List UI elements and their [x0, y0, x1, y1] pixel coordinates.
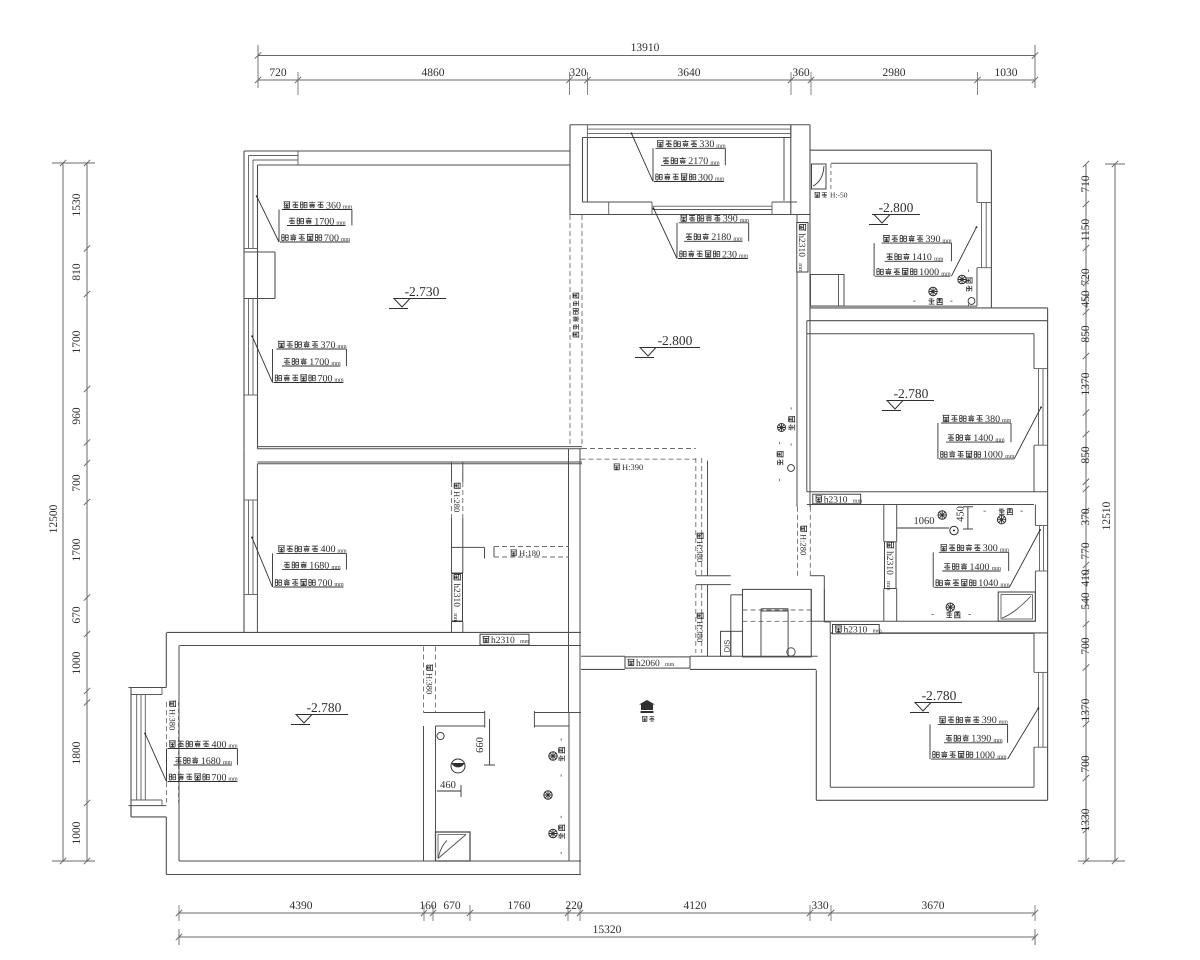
svg-text:h2310: h2310: [451, 583, 461, 607]
svg-text:360: 360: [792, 67, 810, 79]
svg-text:1760: 1760: [508, 900, 531, 912]
svg-text:770: 770: [1080, 542, 1092, 560]
svg-text:h2310: h2310: [796, 233, 806, 257]
svg-text:H:390: H:390: [622, 462, 643, 472]
svg-text:460: 460: [440, 780, 456, 791]
svg-text:1000: 1000: [71, 821, 83, 844]
svg-text:810: 810: [71, 263, 83, 281]
svg-text:960: 960: [71, 407, 83, 425]
svg-text:-: -: [931, 610, 934, 620]
svg-text:4120: 4120: [684, 900, 707, 912]
svg-text:-: -: [776, 479, 786, 482]
svg-text:H:380: H:380: [695, 621, 705, 642]
svg-text:670: 670: [71, 606, 83, 624]
svg-text:mm: mm: [797, 263, 803, 273]
svg-text:720: 720: [269, 67, 287, 79]
svg-text:3670: 3670: [922, 900, 945, 912]
svg-text:-: -: [950, 297, 953, 307]
svg-text:13910: 13910: [631, 42, 660, 54]
svg-text:450: 450: [1080, 290, 1092, 308]
svg-text:-: -: [983, 507, 986, 517]
svg-text:-: -: [965, 269, 975, 272]
svg-text:h2060: h2060: [636, 659, 660, 669]
svg-text:540: 540: [1080, 592, 1092, 610]
svg-text:1330: 1330: [1080, 808, 1092, 831]
svg-text:H:-50: H:-50: [830, 191, 848, 200]
svg-text:h2310: h2310: [844, 626, 868, 636]
svg-text:H:380: H:380: [695, 541, 705, 562]
svg-text:12510: 12510: [1101, 501, 1113, 530]
svg-text:4390: 4390: [290, 900, 313, 912]
svg-text:1530: 1530: [71, 193, 83, 216]
svg-text:-: -: [787, 443, 797, 446]
svg-text:1060: 1060: [914, 516, 935, 527]
svg-text:-2.730: -2.730: [405, 284, 440, 299]
svg-text:220: 220: [565, 900, 583, 912]
svg-text:DIS: DIS: [723, 640, 732, 653]
svg-text:h2310: h2310: [491, 636, 515, 646]
svg-text:160: 160: [419, 900, 437, 912]
svg-text:mm: mm: [853, 498, 863, 504]
svg-text:mm: mm: [665, 662, 675, 668]
svg-text:-2.780: -2.780: [307, 700, 342, 715]
svg-text:850: 850: [1080, 446, 1092, 464]
svg-text:410: 410: [1080, 569, 1092, 587]
svg-text:700: 700: [1080, 637, 1092, 655]
svg-text:-: -: [557, 738, 567, 741]
svg-text:12500: 12500: [48, 504, 60, 533]
svg-text:-: -: [776, 442, 786, 445]
svg-text:mm: mm: [873, 629, 883, 635]
svg-text:720: 720: [1080, 268, 1092, 286]
svg-text:320: 320: [569, 67, 587, 79]
svg-text:660: 660: [475, 737, 486, 753]
svg-text:mm: mm: [452, 613, 458, 623]
svg-text:-2.780: -2.780: [894, 386, 929, 401]
svg-text:-: -: [557, 816, 567, 819]
svg-text:1800: 1800: [71, 741, 83, 764]
svg-text:1370: 1370: [1080, 698, 1092, 721]
svg-text:-: -: [913, 297, 916, 307]
svg-text:-: -: [968, 610, 971, 620]
svg-text:4860: 4860: [422, 67, 445, 79]
svg-text:450: 450: [956, 506, 967, 522]
svg-text:-: -: [787, 407, 797, 410]
svg-text:1370: 1370: [1080, 372, 1092, 395]
svg-text:15320: 15320: [593, 924, 622, 936]
svg-text:700: 700: [71, 474, 83, 492]
svg-text:-2.800: -2.800: [658, 333, 693, 348]
svg-text:850: 850: [1080, 325, 1092, 343]
svg-text:1150: 1150: [1080, 218, 1092, 241]
svg-text:1700: 1700: [71, 330, 83, 353]
svg-text:-: -: [1020, 507, 1023, 517]
svg-text:-: -: [557, 774, 567, 777]
svg-text:H:180: H:180: [519, 548, 540, 558]
svg-text:370: 370: [1080, 508, 1092, 526]
svg-text:mm: mm: [520, 639, 530, 645]
svg-text:700: 700: [1080, 755, 1092, 773]
svg-text:710: 710: [1080, 175, 1092, 193]
svg-text:H:380: H:380: [425, 673, 435, 694]
svg-text:330: 330: [811, 900, 829, 912]
svg-text:h2310: h2310: [824, 495, 848, 505]
svg-text:-2.800: -2.800: [879, 200, 914, 215]
svg-text:2980: 2980: [883, 67, 906, 79]
svg-text:670: 670: [443, 900, 461, 912]
svg-text:3640: 3640: [678, 67, 701, 79]
svg-text:1000: 1000: [71, 651, 83, 674]
svg-text:1030: 1030: [995, 67, 1018, 79]
svg-text:H:280: H:280: [452, 491, 462, 512]
svg-text:-2.780: -2.780: [922, 688, 957, 703]
svg-text:h2310: h2310: [884, 551, 894, 575]
svg-text:-: -: [557, 852, 567, 855]
svg-text:1700: 1700: [71, 538, 83, 561]
svg-text:H:380: H:380: [168, 709, 178, 730]
svg-text:mm: mm: [885, 581, 891, 591]
svg-text:H:280: H:280: [799, 534, 809, 555]
